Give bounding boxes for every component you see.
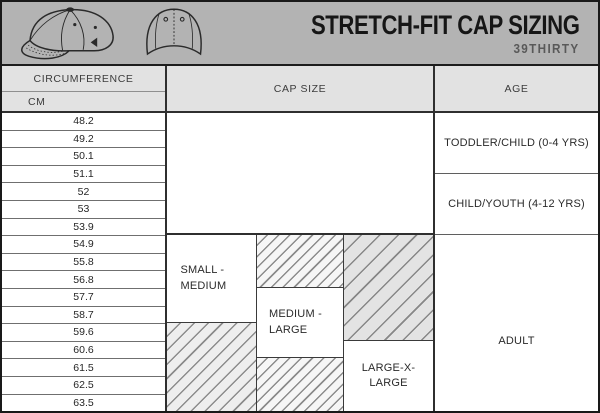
hatch-region-medium-large-below — [257, 358, 343, 411]
column-header-circumference-group: CIRCUMFERENCE CM — [2, 66, 167, 113]
hatch-region-medium-large-above — [257, 235, 343, 288]
circumference-row: 62.5 — [2, 377, 165, 395]
circumference-row: 51.1 — [2, 166, 165, 184]
circumference-row: 49.2 — [2, 131, 165, 149]
age-cell-toddler-child: TODDLER/CHILD (0-4 YRS) — [435, 113, 598, 174]
circumference-row: 56.8 — [2, 271, 165, 289]
circumference-column: 48.2 49.2 50.1 51.1 52 53 53.9 54.9 55.8… — [2, 113, 167, 411]
page-title: STRETCH-FIT CAP SIZING — [311, 12, 580, 39]
circumference-row: 59.6 — [2, 324, 165, 342]
title-block: STRETCH-FIT CAP SIZING 39THIRTY — [252, 12, 580, 55]
stretch-fit-sizing-chart: STRETCH-FIT CAP SIZING 39THIRTY CIRCUMFE… — [0, 0, 600, 413]
hatch-region-small-medium-below — [167, 323, 256, 411]
cap-size-large-xlarge-label: LARGE-X-LARGE — [358, 361, 420, 392]
column-header-cm: CM — [2, 92, 165, 111]
circumference-row: 63.5 — [2, 395, 165, 412]
circumference-row: 53 — [2, 201, 165, 219]
cap-size-empty-region — [167, 113, 435, 235]
cap-size-medium-large-column: MEDIUM - LARGE — [257, 235, 344, 411]
cap-size-small-medium-cell: SMALL - MEDIUM — [167, 235, 256, 323]
circumference-row: 57.7 — [2, 289, 165, 307]
cap-size-small-medium-label: SMALL - MEDIUM — [181, 263, 243, 294]
column-header-circumference: CIRCUMFERENCE — [2, 66, 165, 92]
header-banner: STRETCH-FIT CAP SIZING 39THIRTY — [2, 2, 598, 66]
cap-size-medium-large-cell: MEDIUM - LARGE — [257, 288, 343, 358]
circumference-row: 61.5 — [2, 359, 165, 377]
cap-illustrations — [16, 5, 206, 61]
circumference-row: 55.8 — [2, 254, 165, 272]
circumference-row: 53.9 — [2, 219, 165, 237]
cap-size-medium-large-label: MEDIUM - LARGE — [269, 307, 331, 338]
column-header-age: AGE — [435, 66, 598, 113]
cap-front-view-icon — [142, 5, 206, 61]
circumference-row: 58.7 — [2, 307, 165, 325]
hatch-region-large-xlarge-above — [344, 235, 433, 341]
circumference-row: 50.1 — [2, 148, 165, 166]
column-header-cap-size: CAP SIZE — [167, 66, 435, 113]
circumference-row: 60.6 — [2, 342, 165, 360]
cap-size-small-medium-column: SMALL - MEDIUM — [167, 235, 257, 411]
cap-size-large-xlarge-column: LARGE-X-LARGE — [344, 235, 435, 411]
age-cell-child-youth: CHILD/YOUTH (4-12 YRS) — [435, 174, 598, 235]
product-line-label: 39THIRTY — [285, 42, 580, 55]
circumference-row: 52 — [2, 183, 165, 201]
cap-side-view-icon — [16, 5, 128, 61]
cap-size-large-xlarge-cell: LARGE-X-LARGE — [344, 341, 433, 411]
age-cell-adult: ADULT — [435, 235, 598, 411]
circumference-row: 54.9 — [2, 236, 165, 254]
circumference-row: 48.2 — [2, 113, 165, 131]
